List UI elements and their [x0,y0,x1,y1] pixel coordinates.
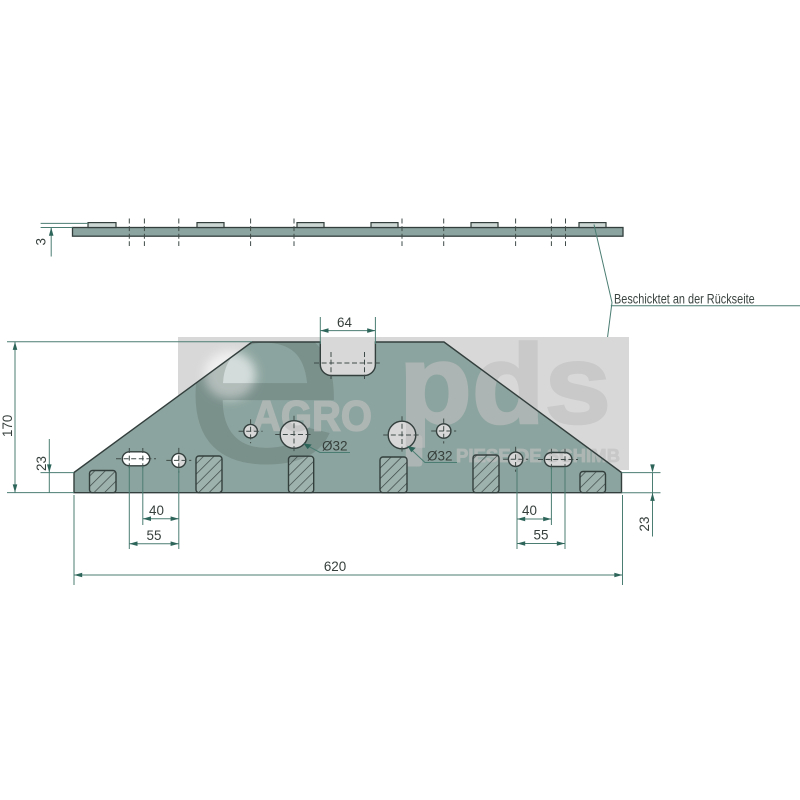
svg-text:pds: pds [399,322,611,447]
svg-text:Ø32: Ø32 [427,449,453,464]
svg-text:AGRO: AGRO [252,393,372,441]
svg-text:23: 23 [34,456,49,471]
svg-text:Ø32: Ø32 [322,439,348,454]
svg-text:620: 620 [324,559,346,574]
svg-text:23: 23 [637,517,652,532]
svg-text:3: 3 [34,238,49,245]
svg-text:55: 55 [147,528,162,543]
svg-text:170: 170 [0,415,15,437]
svg-text:40: 40 [522,503,537,518]
svg-text:64: 64 [337,315,352,330]
svg-text:55: 55 [534,528,549,543]
svg-text:Beschicktet an der Rückseite: Beschicktet an der Rückseite [614,291,755,307]
svg-text:40: 40 [149,503,164,518]
